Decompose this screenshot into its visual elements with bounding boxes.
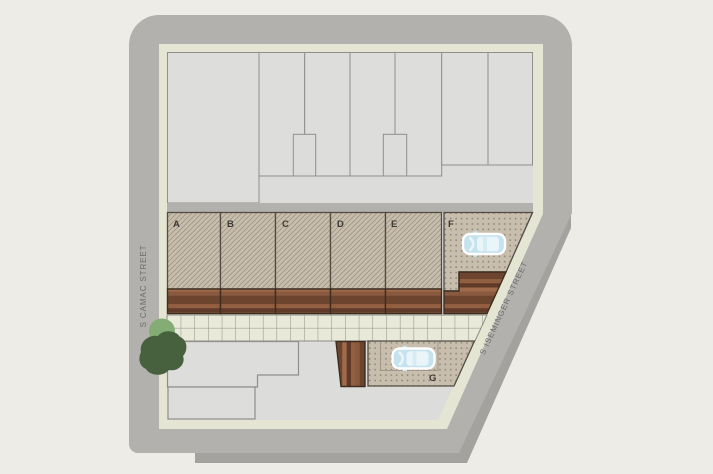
building-outline (442, 53, 488, 166)
lot-label-f: F (448, 219, 454, 230)
deck-c (276, 289, 331, 314)
building-courtyard-notch (293, 134, 315, 176)
decks-wood (168, 289, 442, 314)
lot-label-a: A (173, 219, 180, 230)
deck-d (331, 289, 386, 314)
car-icon (463, 231, 505, 257)
site-plan-svg: S CAMAC STREET S ISEMINGER STREET A B C … (0, 0, 713, 474)
building-outline (168, 53, 260, 204)
lot-label-b: B (227, 219, 234, 230)
street-label-camac: S CAMAC STREET (139, 245, 148, 328)
deck-e (386, 289, 442, 314)
deck-b (221, 289, 276, 314)
building-outline (168, 387, 255, 419)
car-icon (393, 346, 435, 372)
rear-alley (167, 203, 533, 213)
lot-label-g: G (429, 373, 436, 384)
deck-g (336, 342, 365, 387)
sidewalk-grid (167, 315, 487, 341)
deck-a (168, 289, 221, 314)
lot-label-e: E (391, 219, 397, 230)
lots-hatched (168, 213, 442, 290)
lot-label-c: C (282, 219, 289, 230)
building-outline (488, 53, 533, 166)
site-plan: S CAMAC STREET S ISEMINGER STREET A B C … (0, 0, 713, 474)
lot-label-d: D (337, 219, 344, 230)
building-courtyard-notch (383, 134, 406, 176)
